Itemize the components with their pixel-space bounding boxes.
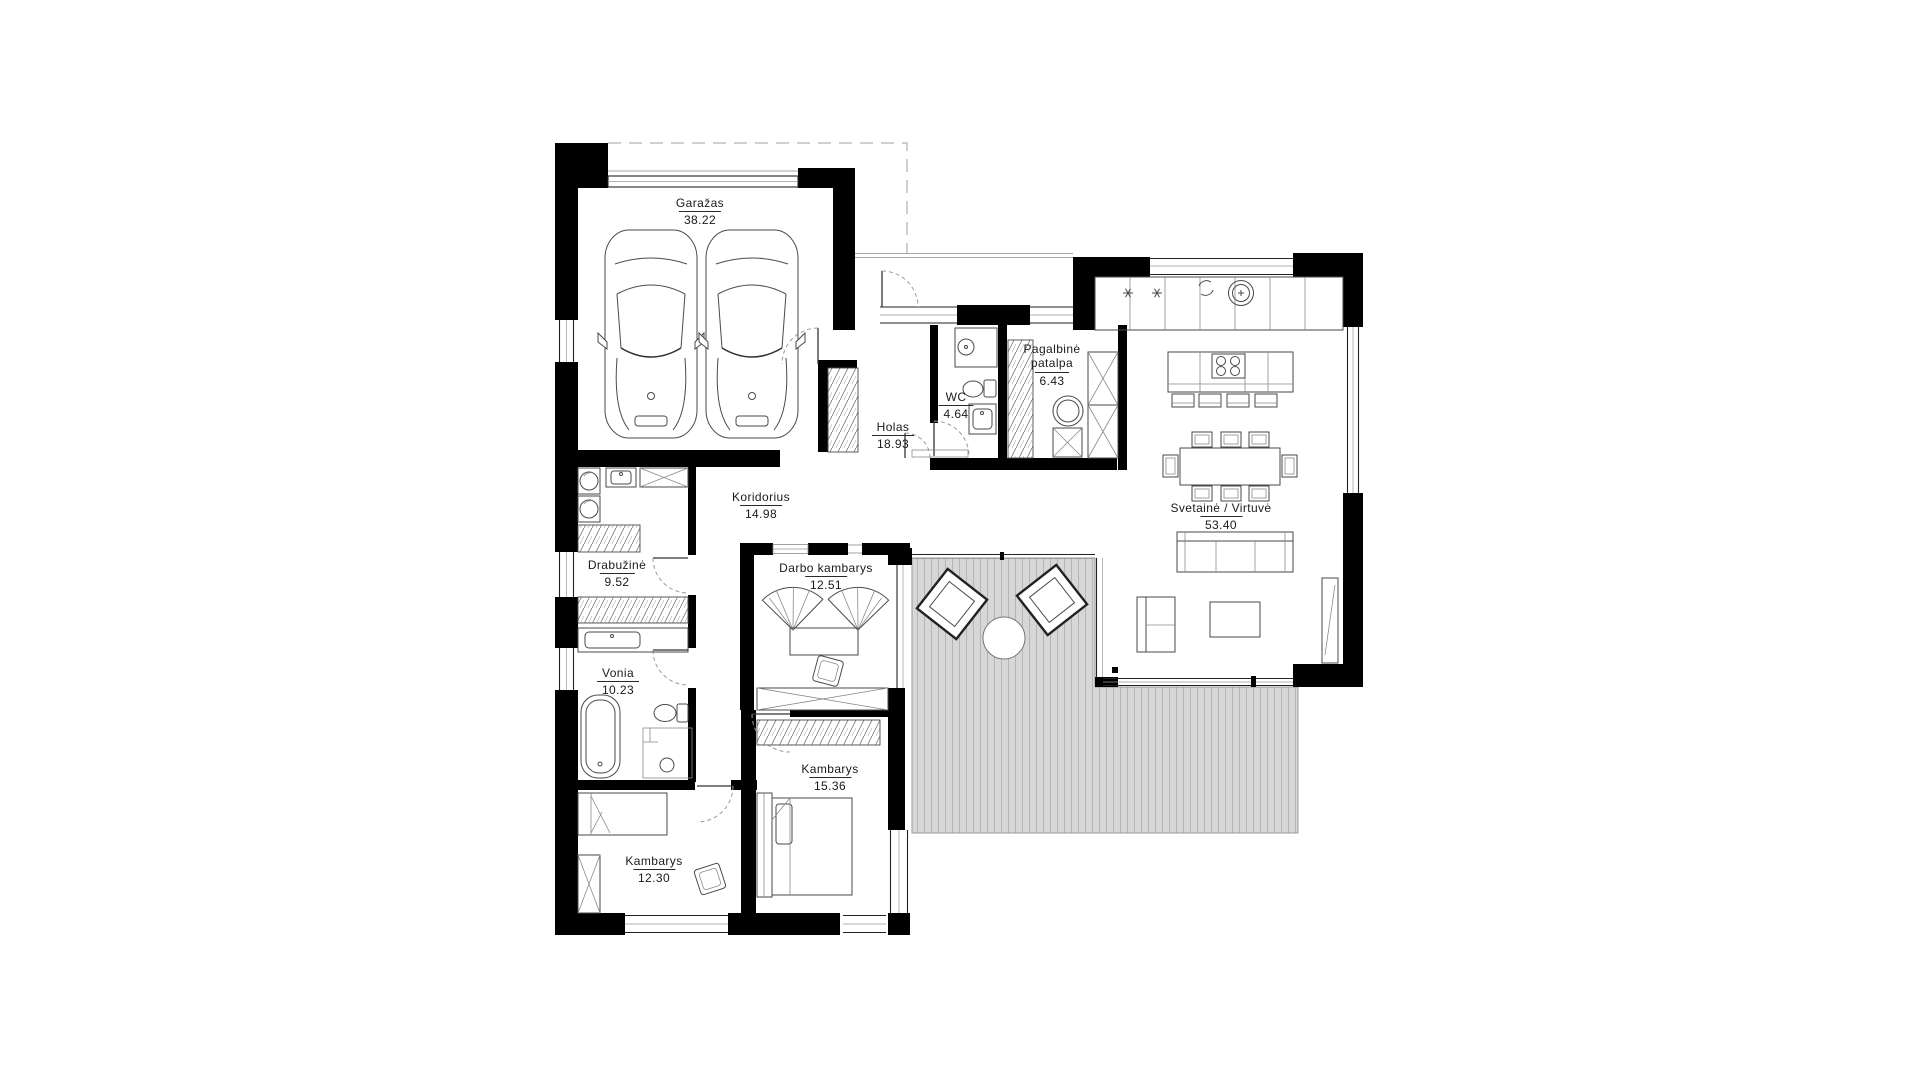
room-label-darbo-kambarys: Darbo kambarys 12.51: [779, 561, 873, 593]
room-name: Svetainė / Virtuvė: [1170, 501, 1271, 515]
room-name: Kambarys: [801, 762, 858, 776]
room-name: Vonia: [597, 666, 639, 680]
bedroom-small-furniture: [578, 793, 726, 913]
room-label-drabuzine: Drabužinė 9.52: [588, 558, 646, 590]
room-area: 4.64: [939, 405, 974, 421]
hob-symbol: [1199, 281, 1213, 296]
terrace: [912, 558, 1298, 833]
room-area: 6.43: [1035, 372, 1070, 388]
room-label-pagalbine: Pagalbinė patalpa 6.43: [1013, 342, 1091, 388]
room-name: Pagalbinė patalpa: [1013, 342, 1091, 371]
kitchen-island: [1168, 352, 1293, 407]
floor-plan-drawing: [0, 0, 1920, 1080]
room-area: 38.22: [679, 211, 721, 227]
room-area: 10.23: [597, 681, 639, 697]
room-name: Kambarys: [625, 854, 682, 868]
appliance-symbol: [1152, 289, 1162, 298]
room-area: 53.40: [1200, 516, 1242, 532]
room-area: 18.93: [872, 435, 914, 451]
room-area: 12.30: [633, 869, 675, 885]
room-name: Holas: [872, 420, 914, 434]
room-name: Koridorius: [732, 490, 790, 504]
room-name: WC: [939, 390, 974, 404]
floor-plan-canvas: Garažas 38.22 Holas 18.93 WC 4.64 Pagalb…: [0, 0, 1920, 1080]
canopy-outline: [608, 143, 907, 253]
room-label-svetaine-virtuve: Svetainė / Virtuvė 53.40: [1170, 501, 1271, 533]
room-area: 9.52: [600, 573, 635, 589]
room-area: 12.51: [805, 576, 847, 592]
room-name: Darbo kambarys: [779, 561, 873, 575]
room-label-garazas: Garažas 38.22: [676, 196, 724, 228]
dining-set: [1163, 432, 1297, 501]
terrace-round-table: [983, 617, 1025, 659]
kitchen-counter: [1095, 277, 1343, 330]
room-label-kambarys-12: Kambarys 12.30: [625, 854, 682, 886]
room-label-wc: WC 4.64: [939, 390, 974, 422]
laundry-appliances: [578, 468, 688, 522]
bedroom-large-furniture: [757, 720, 880, 897]
garage-cars: [598, 230, 805, 438]
room-label-holas: Holas 18.93: [872, 420, 914, 452]
room-name: Drabužinė: [588, 558, 646, 572]
room-label-kambarys-15: Kambarys 15.36: [801, 762, 858, 794]
room-label-koridorius: Koridorius 14.98: [732, 490, 790, 522]
oven-symbol: [1229, 281, 1254, 306]
room-name: Garažas: [676, 196, 724, 210]
living-room-furniture: [1137, 532, 1338, 663]
appliance-symbol: [1123, 289, 1133, 298]
room-label-vonia: Vonia 10.23: [597, 666, 639, 698]
room-area: 15.36: [809, 777, 851, 793]
room-area: 14.98: [740, 505, 782, 521]
